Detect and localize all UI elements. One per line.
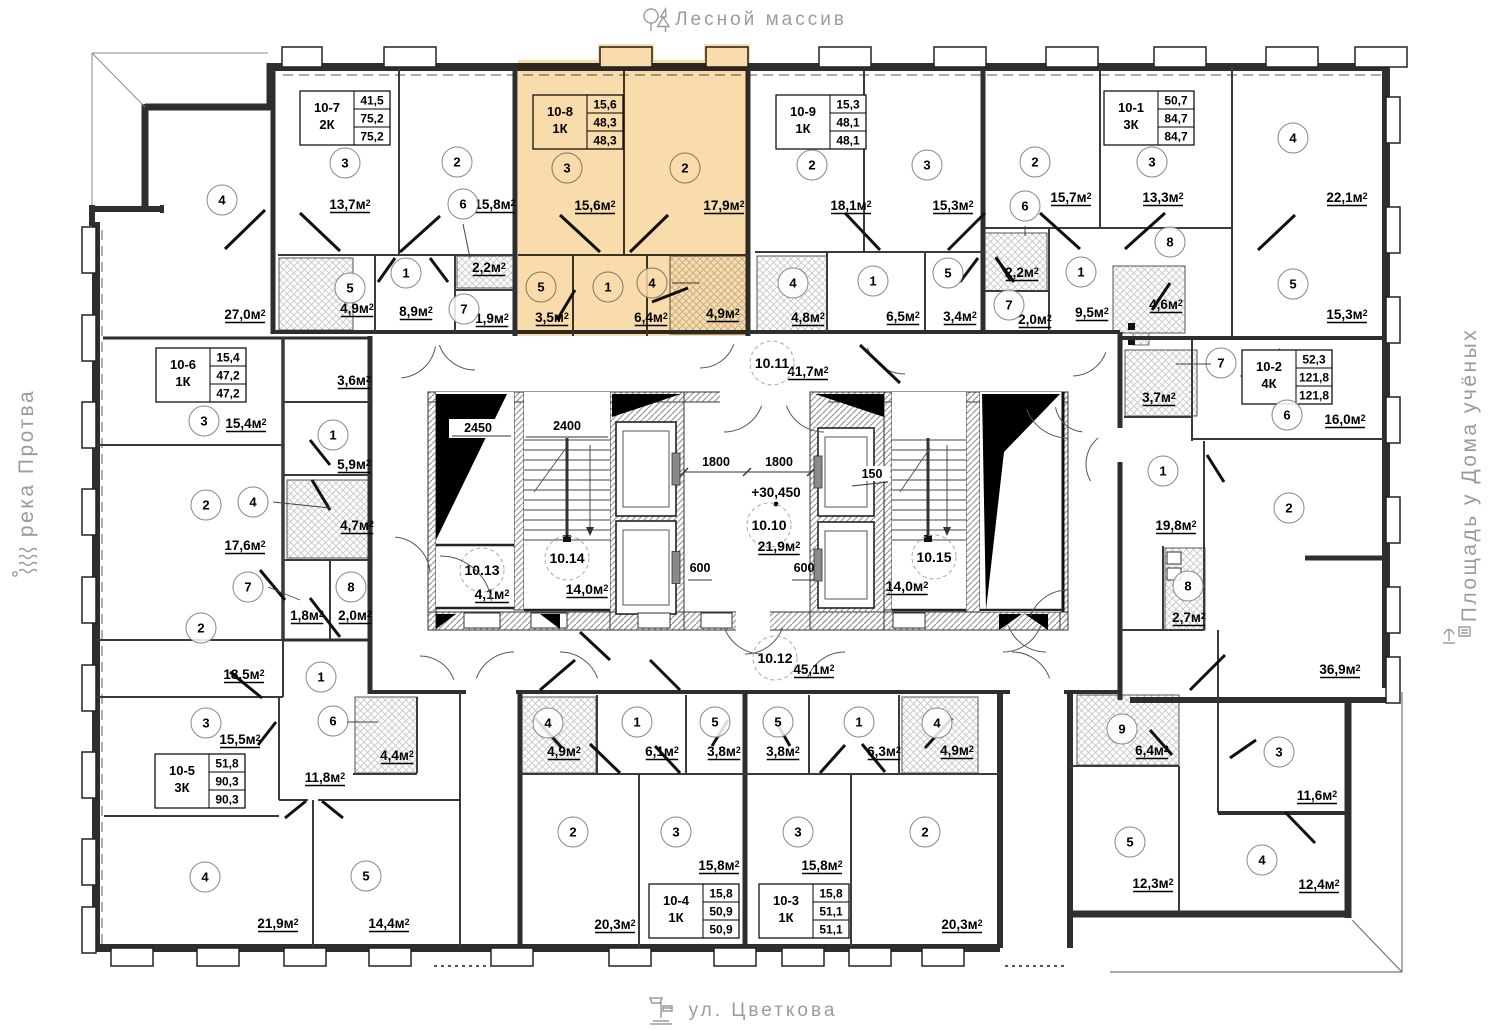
svg-text:1: 1 — [633, 715, 640, 730]
svg-text:2: 2 — [569, 825, 576, 840]
svg-text:2К: 2К — [319, 117, 334, 132]
svg-text:15,3м2: 15,3м2 — [932, 198, 973, 213]
svg-text:4К: 4К — [1261, 376, 1276, 391]
svg-text:3,8м2: 3,8м2 — [707, 744, 741, 759]
svg-text:51,8: 51,8 — [215, 757, 239, 771]
svg-text:75,2: 75,2 — [360, 130, 384, 144]
svg-text:15,8м2: 15,8м2 — [801, 858, 842, 873]
svg-text:13,7м2: 13,7м2 — [329, 197, 370, 212]
svg-text:река Протва: река Протва — [15, 389, 38, 537]
svg-text:5: 5 — [711, 715, 718, 730]
svg-text:2: 2 — [921, 825, 928, 840]
svg-text:3: 3 — [794, 825, 801, 840]
svg-text:5: 5 — [1289, 277, 1296, 292]
svg-text:Площадь у Дома учёных: Площадь у Дома учёных — [1458, 328, 1481, 622]
svg-text:7: 7 — [244, 580, 251, 595]
svg-text:47,2: 47,2 — [216, 369, 240, 383]
svg-text:2: 2 — [1285, 501, 1292, 516]
svg-text:50,9: 50,9 — [709, 905, 733, 919]
svg-text:10-6: 10-6 — [170, 357, 196, 372]
svg-text:14,4м2: 14,4м2 — [368, 916, 409, 931]
svg-text:4: 4 — [249, 495, 257, 510]
svg-text:3: 3 — [200, 414, 207, 429]
svg-text:1К: 1К — [668, 910, 683, 925]
svg-text:3: 3 — [672, 825, 679, 840]
svg-text:51,1: 51,1 — [819, 923, 843, 937]
svg-text:4: 4 — [1289, 131, 1297, 146]
svg-text:1: 1 — [329, 428, 336, 443]
svg-text:3: 3 — [923, 158, 930, 173]
svg-text:52,3: 52,3 — [1302, 353, 1326, 367]
svg-text:2: 2 — [808, 158, 815, 173]
svg-text:36,9м2: 36,9м2 — [1319, 662, 1360, 677]
svg-text:5: 5 — [1126, 835, 1133, 850]
svg-text:1К: 1К — [175, 374, 190, 389]
svg-text:22,1м2: 22,1м2 — [1326, 190, 1367, 205]
svg-text:9,5м2: 9,5м2 — [1075, 305, 1109, 320]
svg-text:4: 4 — [218, 193, 226, 208]
svg-text:16,0м2: 16,0м2 — [1324, 412, 1365, 427]
svg-text:3,6м2: 3,6м2 — [337, 373, 371, 388]
svg-text:600: 600 — [690, 561, 711, 575]
svg-text:18,5м2: 18,5м2 — [223, 667, 264, 682]
svg-text:4,8м2: 4,8м2 — [791, 310, 825, 325]
svg-text:15,8: 15,8 — [819, 887, 843, 901]
svg-text:3: 3 — [1275, 745, 1282, 760]
svg-text:2: 2 — [202, 498, 209, 513]
svg-text:1К: 1К — [795, 121, 810, 136]
svg-text:1800: 1800 — [765, 455, 793, 469]
svg-text:1К: 1К — [778, 910, 793, 925]
svg-text:20,3м2: 20,3м2 — [941, 917, 982, 932]
svg-text:3К: 3К — [1123, 117, 1138, 132]
svg-text:11,8м2: 11,8м2 — [305, 770, 346, 785]
svg-text:6,5м2: 6,5м2 — [886, 309, 920, 324]
svg-text:1800: 1800 — [702, 455, 730, 469]
svg-text:10-9: 10-9 — [790, 104, 816, 119]
svg-text:48,1: 48,1 — [836, 116, 860, 130]
svg-text:7: 7 — [460, 302, 467, 317]
svg-text:3,7м2: 3,7м2 — [1142, 390, 1176, 405]
svg-text:15,8м2: 15,8м2 — [474, 197, 515, 212]
svg-text:4: 4 — [544, 716, 552, 731]
svg-text:6: 6 — [1283, 408, 1290, 423]
svg-text:15,7м2: 15,7м2 — [1050, 190, 1091, 205]
svg-text:10.15: 10.15 — [916, 549, 951, 565]
svg-text:4,4м2: 4,4м2 — [380, 748, 414, 763]
svg-text:4: 4 — [789, 276, 797, 291]
svg-text:10-4: 10-4 — [663, 893, 690, 908]
svg-text:3: 3 — [1148, 155, 1155, 170]
svg-text:5: 5 — [774, 715, 781, 730]
svg-text:5,9м2: 5,9м2 — [337, 457, 371, 472]
svg-text:4,9м2: 4,9м2 — [547, 744, 581, 759]
svg-text:21,9м2: 21,9м2 — [758, 538, 801, 554]
svg-text:Лесной массив: Лесной массив — [675, 9, 847, 30]
svg-text:50,9: 50,9 — [709, 923, 733, 937]
svg-text:18,1м2: 18,1м2 — [830, 198, 871, 213]
svg-text:14,0м2: 14,0м2 — [886, 578, 929, 594]
svg-text:14,0м2: 14,0м2 — [566, 581, 609, 597]
svg-text:20,3м2: 20,3м2 — [594, 917, 635, 932]
svg-text:48,1: 48,1 — [836, 134, 860, 148]
svg-text:50,7: 50,7 — [1164, 94, 1188, 108]
svg-text:7: 7 — [1005, 298, 1012, 313]
svg-text:+30,450: +30,450 — [751, 485, 800, 500]
svg-text:8,9м2: 8,9м2 — [399, 304, 433, 319]
svg-text:1,9м2: 1,9м2 — [475, 311, 509, 326]
svg-text:10.14: 10.14 — [549, 550, 584, 566]
svg-text:4,9м2: 4,9м2 — [340, 301, 374, 316]
svg-text:10-2: 10-2 — [1256, 359, 1282, 374]
svg-text:11,6м2: 11,6м2 — [1297, 788, 1338, 803]
svg-text:10.10: 10.10 — [751, 517, 786, 533]
svg-text:10-3: 10-3 — [773, 893, 799, 908]
svg-text:3: 3 — [341, 156, 348, 171]
svg-text:2: 2 — [453, 155, 460, 170]
svg-text:10-1: 10-1 — [1118, 100, 1144, 115]
svg-text:2,2м2: 2,2м2 — [1005, 265, 1039, 280]
svg-text:10.11: 10.11 — [755, 355, 789, 371]
svg-text:10-5: 10-5 — [169, 763, 195, 778]
svg-text:10.13: 10.13 — [464, 562, 499, 578]
svg-text:4: 4 — [201, 870, 209, 885]
svg-text:2: 2 — [1031, 155, 1038, 170]
svg-text:10.12: 10.12 — [757, 650, 792, 666]
svg-text:6,3м2: 6,3м2 — [867, 744, 901, 759]
svg-text:27,0м2: 27,0м2 — [224, 307, 265, 322]
svg-text:90,3: 90,3 — [215, 793, 239, 807]
svg-text:15,3м2: 15,3м2 — [1326, 307, 1367, 322]
svg-text:41,5: 41,5 — [360, 94, 384, 108]
svg-text:90,3: 90,3 — [215, 775, 239, 789]
svg-text:15,8: 15,8 — [709, 887, 733, 901]
svg-text:2400: 2400 — [553, 419, 581, 433]
svg-text:3,8м2: 3,8м2 — [766, 744, 800, 759]
svg-text:1,8м2: 1,8м2 — [290, 608, 324, 623]
svg-text:12,4м2: 12,4м2 — [1298, 877, 1339, 892]
svg-text:2450: 2450 — [464, 421, 492, 435]
svg-text:1: 1 — [1077, 265, 1084, 280]
svg-text:4,6м2: 4,6м2 — [1149, 297, 1183, 312]
svg-text:13,3м2: 13,3м2 — [1142, 190, 1183, 205]
svg-text:8: 8 — [347, 580, 354, 595]
svg-text:4: 4 — [933, 716, 941, 731]
svg-text:3К: 3К — [174, 780, 189, 795]
svg-text:9: 9 — [1118, 722, 1125, 737]
svg-text:5: 5 — [362, 869, 369, 884]
svg-text:2,2м2: 2,2м2 — [472, 260, 506, 275]
svg-text:75,2: 75,2 — [360, 112, 384, 126]
svg-text:15,4: 15,4 — [216, 351, 240, 365]
svg-text:10-7: 10-7 — [314, 100, 340, 115]
svg-text:5: 5 — [346, 281, 353, 296]
svg-text:2: 2 — [197, 621, 204, 636]
svg-text:6: 6 — [329, 714, 336, 729]
svg-text:6: 6 — [1021, 199, 1028, 214]
svg-text:ул. Цветкова: ул. Цветкова — [689, 1000, 838, 1021]
svg-text:4,9м2: 4,9м2 — [940, 743, 974, 758]
svg-text:7: 7 — [1217, 356, 1224, 371]
svg-text:15,5м2: 15,5м2 — [219, 732, 260, 747]
svg-text:6,1м2: 6,1м2 — [645, 744, 679, 759]
svg-text:4: 4 — [1258, 853, 1266, 868]
svg-text:15,8м2: 15,8м2 — [698, 858, 739, 873]
svg-text:84,7: 84,7 — [1164, 130, 1188, 144]
svg-text:1: 1 — [402, 266, 409, 281]
svg-text:17,6м2: 17,6м2 — [224, 538, 265, 553]
svg-text:4,7м2: 4,7м2 — [340, 518, 374, 533]
svg-text:3,4м2: 3,4м2 — [943, 309, 977, 324]
svg-text:15,4м2: 15,4м2 — [225, 416, 266, 431]
svg-text:51,1: 51,1 — [819, 905, 843, 919]
svg-text:21,9м2: 21,9м2 — [257, 916, 298, 931]
svg-text:121,8: 121,8 — [1299, 371, 1329, 385]
svg-text:4,1м2: 4,1м2 — [475, 586, 510, 602]
svg-text:8: 8 — [1184, 579, 1191, 594]
svg-text:8: 8 — [1166, 235, 1173, 250]
svg-text:1: 1 — [317, 670, 324, 685]
svg-text:1: 1 — [869, 274, 876, 289]
svg-text:2,0м2: 2,0м2 — [1018, 312, 1052, 327]
svg-text:12,3м2: 12,3м2 — [1132, 876, 1173, 891]
svg-text:6: 6 — [459, 197, 466, 212]
svg-text:1: 1 — [1159, 464, 1166, 479]
svg-text:84,7: 84,7 — [1164, 112, 1188, 126]
svg-text:1: 1 — [855, 715, 862, 730]
svg-text:2,7м2: 2,7м2 — [1172, 610, 1206, 625]
svg-text:6,4м2: 6,4м2 — [1135, 743, 1169, 758]
svg-text:2,0м2: 2,0м2 — [338, 608, 372, 623]
svg-text:15,3: 15,3 — [836, 98, 860, 112]
svg-text:19,8м2: 19,8м2 — [1155, 518, 1196, 533]
svg-text:121,8: 121,8 — [1299, 389, 1329, 403]
svg-text:45,1м2: 45,1м2 — [793, 662, 834, 677]
svg-text:600: 600 — [794, 561, 815, 575]
svg-text:47,2: 47,2 — [216, 387, 240, 401]
svg-text:5: 5 — [944, 266, 951, 281]
svg-text:150: 150 — [862, 467, 883, 481]
svg-text:3: 3 — [202, 716, 209, 731]
